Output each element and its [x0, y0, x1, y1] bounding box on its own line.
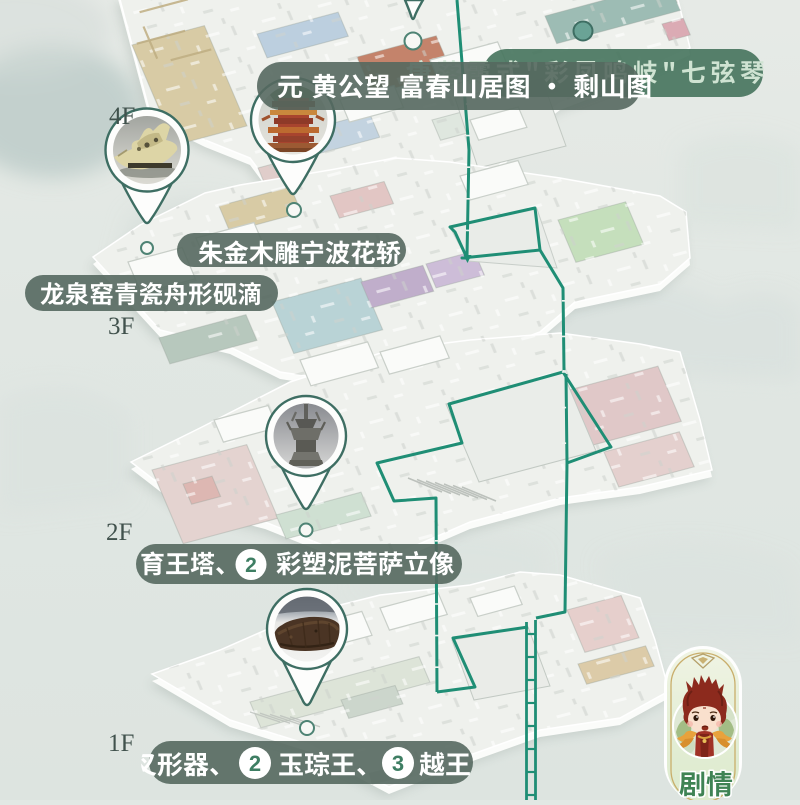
svg-text:3: 3: [392, 751, 404, 776]
svg-text:3F: 3F: [108, 313, 134, 340]
svg-text:2F: 2F: [106, 519, 132, 546]
svg-text:2: 2: [245, 554, 257, 577]
svg-text:2: 2: [249, 751, 261, 776]
svg-text:1F: 1F: [108, 730, 134, 757]
svg-text:4F: 4F: [109, 103, 135, 130]
